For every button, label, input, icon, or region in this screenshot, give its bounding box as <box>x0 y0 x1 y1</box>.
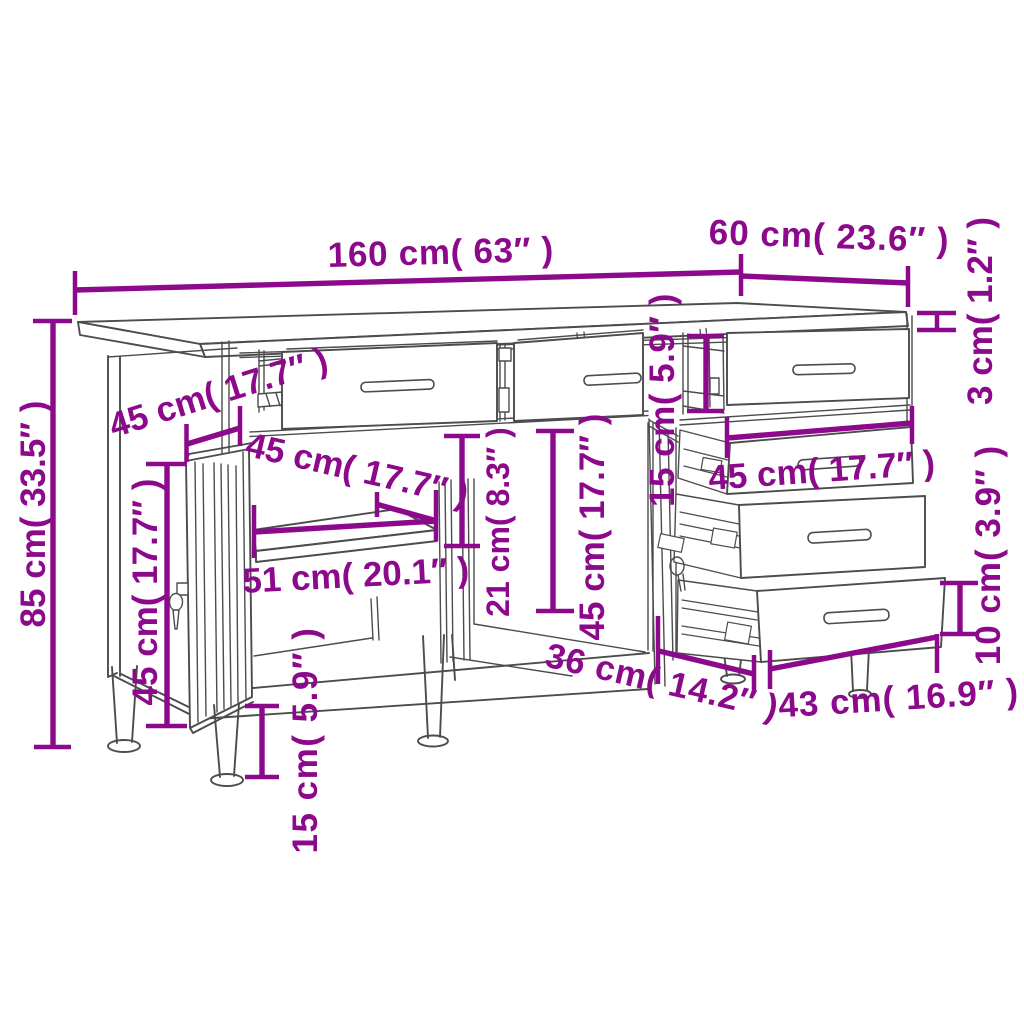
svg-text:45 cm( 17.7″ ): 45 cm( 17.7″ ) <box>126 479 165 706</box>
svg-text:15 cm( 5.9″ ): 15 cm( 5.9″ ) <box>286 627 325 854</box>
svg-text:3 cm( 1.2″ ): 3 cm( 1.2″ ) <box>961 217 1000 405</box>
svg-text:160 cm( 63″ ): 160 cm( 63″ ) <box>327 230 554 275</box>
svg-text:45 cm( 17.7″ ): 45 cm( 17.7″ ) <box>573 414 612 641</box>
svg-text:85 cm( 33.5″ ): 85 cm( 33.5″ ) <box>14 401 53 628</box>
svg-text:15 cm( 5.9″ ): 15 cm( 5.9″ ) <box>643 293 682 507</box>
svg-text:10 cm( 3.9″ ): 10 cm( 3.9″ ) <box>969 445 1008 665</box>
svg-text:21 cm( 8.3″ ): 21 cm( 8.3″ ) <box>480 427 516 617</box>
